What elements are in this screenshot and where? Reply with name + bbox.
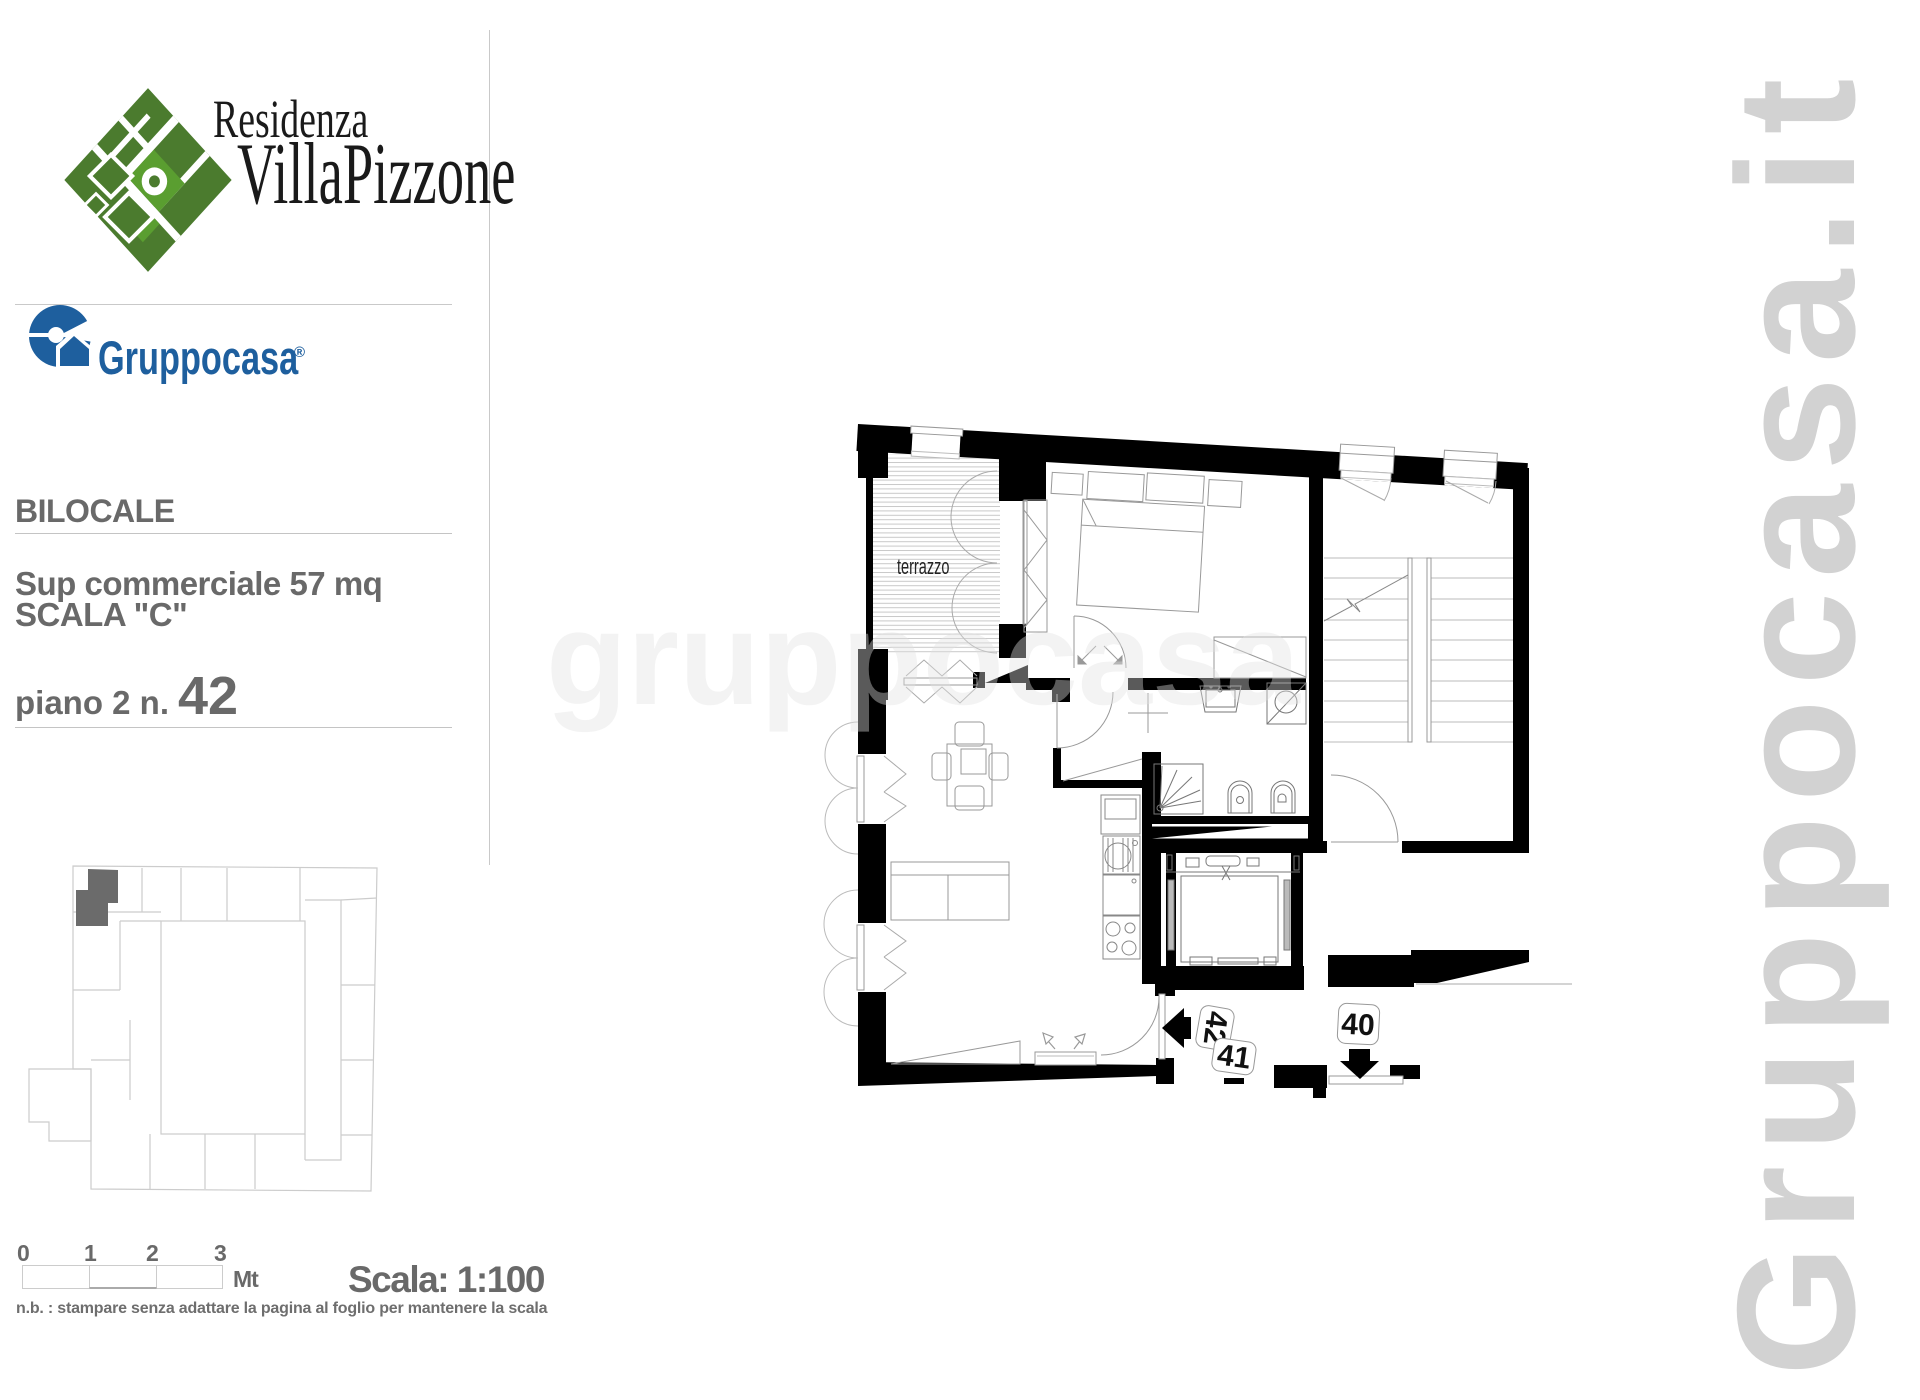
svg-text:40: 40	[1340, 1008, 1375, 1043]
svg-text:41: 41	[1215, 1038, 1253, 1075]
svg-text:terrazzo: terrazzo	[897, 554, 949, 579]
